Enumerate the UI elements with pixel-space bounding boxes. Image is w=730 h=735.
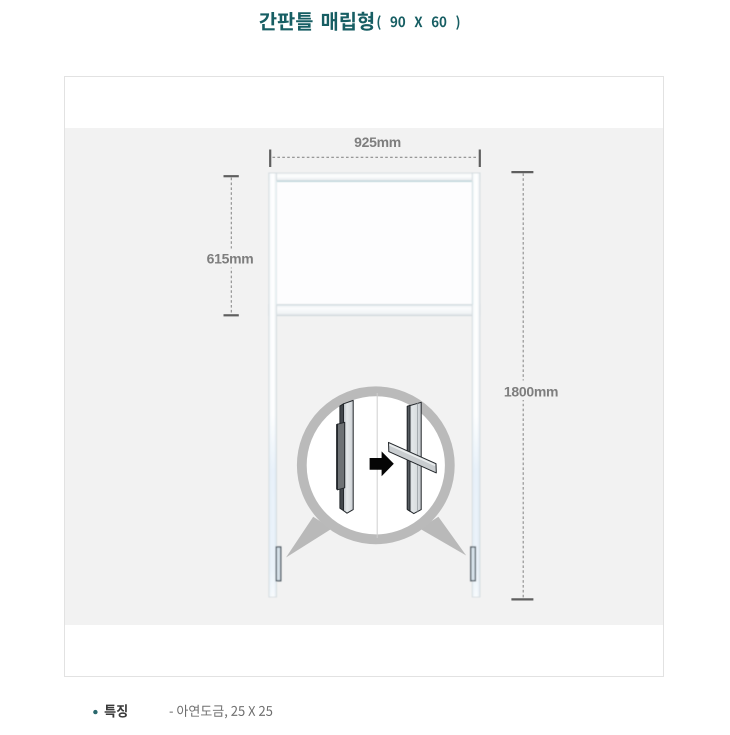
svg-text:615mm: 615mm (207, 250, 254, 266)
svg-text:925mm: 925mm (354, 134, 401, 150)
svg-text:1800mm: 1800mm (504, 383, 558, 399)
